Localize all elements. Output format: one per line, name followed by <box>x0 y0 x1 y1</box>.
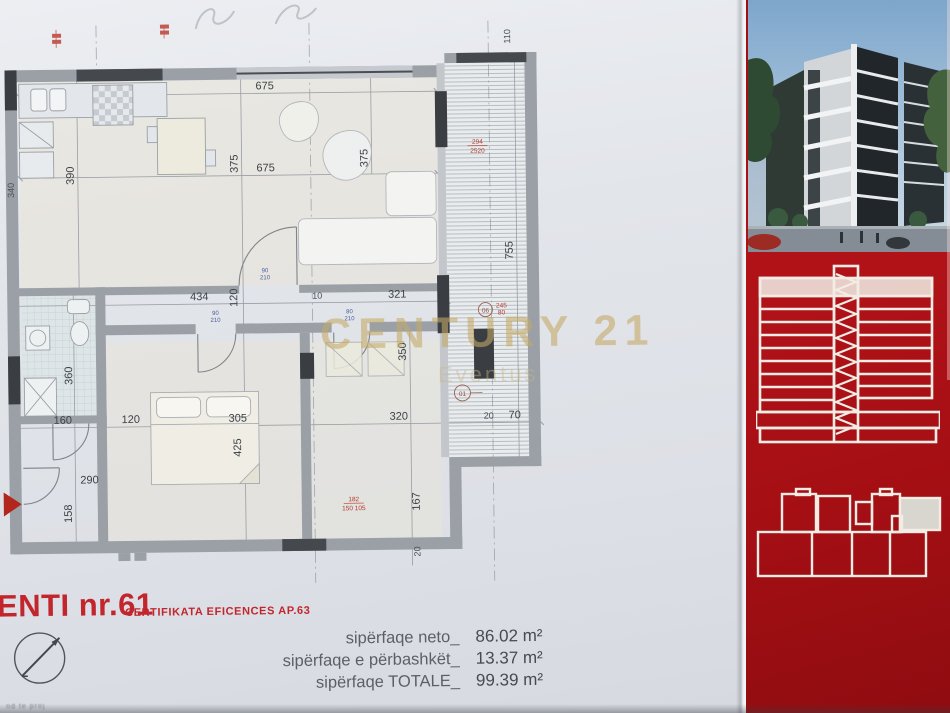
dim-label: 350 <box>397 342 409 361</box>
dim-label: 375 <box>358 149 370 168</box>
dim-label: 290 <box>80 474 99 486</box>
door-size-label: 90 <box>262 268 269 274</box>
dim-label: 320 <box>389 411 408 423</box>
area-row: sipërfaqe TOTALE_ 99.39 m² <box>232 669 582 695</box>
door-size-label: 90 <box>212 311 219 317</box>
area-value: 86.02 m² <box>459 625 579 646</box>
footnote-smudge: nd te proj <box>6 703 45 710</box>
page-content: 675 375 675 375 390 340 110 434 120 10 3… <box>0 0 748 713</box>
dim-label: 675 <box>255 80 274 92</box>
bed <box>150 391 259 484</box>
red-dim-label: 294 <box>472 139 483 146</box>
certificate-label: CERTIFIKATA EFICENCES AP.63 <box>125 605 310 619</box>
dim-label: 360 <box>63 366 75 385</box>
page-edge <box>736 0 746 713</box>
car <box>886 237 910 249</box>
red-dim-label: 2520 <box>470 148 485 155</box>
floor-plan: 675 375 675 375 390 340 110 434 120 10 3… <box>0 17 748 588</box>
building-render <box>748 0 950 252</box>
north-arrow-icon <box>7 624 74 691</box>
keyplan-highlight-unit <box>900 498 940 530</box>
dim-label: 120 <box>122 414 141 426</box>
red-dim-label: 150 105 <box>342 505 366 512</box>
dim-label: 305 <box>228 413 247 425</box>
dim-label: 20 <box>484 411 494 421</box>
area-value: 13.37 m² <box>460 647 580 668</box>
keyplan-diagram <box>752 486 944 586</box>
dim-label: 120 <box>228 288 240 307</box>
dim-label: 340 <box>6 183 16 198</box>
section-marker-label: 01 <box>459 391 467 398</box>
door-size-label: 80 <box>346 309 353 315</box>
elevation-diagram <box>756 264 940 476</box>
dim-label: 675 <box>256 162 275 174</box>
red-dim-label: 80 <box>498 309 506 316</box>
area-label: sipërfaqe e përbashkët_ <box>232 650 460 672</box>
brochure-photo: 675 375 675 375 390 340 110 434 120 10 3… <box>0 0 950 713</box>
red-dim-label: 182 <box>348 496 359 503</box>
brochure-page: 675 375 675 375 390 340 110 434 120 10 3… <box>0 0 744 713</box>
side-panel <box>746 0 950 713</box>
dim-label: 390 <box>65 166 77 185</box>
dim-label: 10 <box>312 291 322 301</box>
section-marker-label: 06 <box>482 308 490 315</box>
car <box>748 234 781 250</box>
stair-zigzag <box>836 274 856 434</box>
dim-label: 70 <box>509 409 521 421</box>
dim-label: 434 <box>190 291 209 303</box>
door-size-label: 210 <box>211 318 222 324</box>
door-size-label: 210 <box>260 275 271 281</box>
dim-label: 158 <box>63 504 75 523</box>
area-table: sipërfaqe neto_ 86.02 m² sipërfaqe e për… <box>231 625 582 695</box>
dim-label: 375 <box>229 154 241 173</box>
area-label: sipërfaqe TOTALE_ <box>232 672 460 694</box>
red-tick-marks <box>52 24 169 47</box>
dim-label: 321 <box>388 289 407 301</box>
dim-label: 160 <box>54 415 73 427</box>
area-value: 99.39 m² <box>460 669 580 690</box>
dim-label: 425 <box>232 438 244 457</box>
area-label: sipërfaqe neto_ <box>231 628 459 650</box>
render-image <box>748 0 950 252</box>
dim-label: 755 <box>504 241 516 260</box>
dim-label: 110 <box>502 29 512 43</box>
door-size-label: 210 <box>344 316 355 322</box>
dim-label: 20 <box>412 546 422 556</box>
dim-label: 167 <box>411 492 423 511</box>
